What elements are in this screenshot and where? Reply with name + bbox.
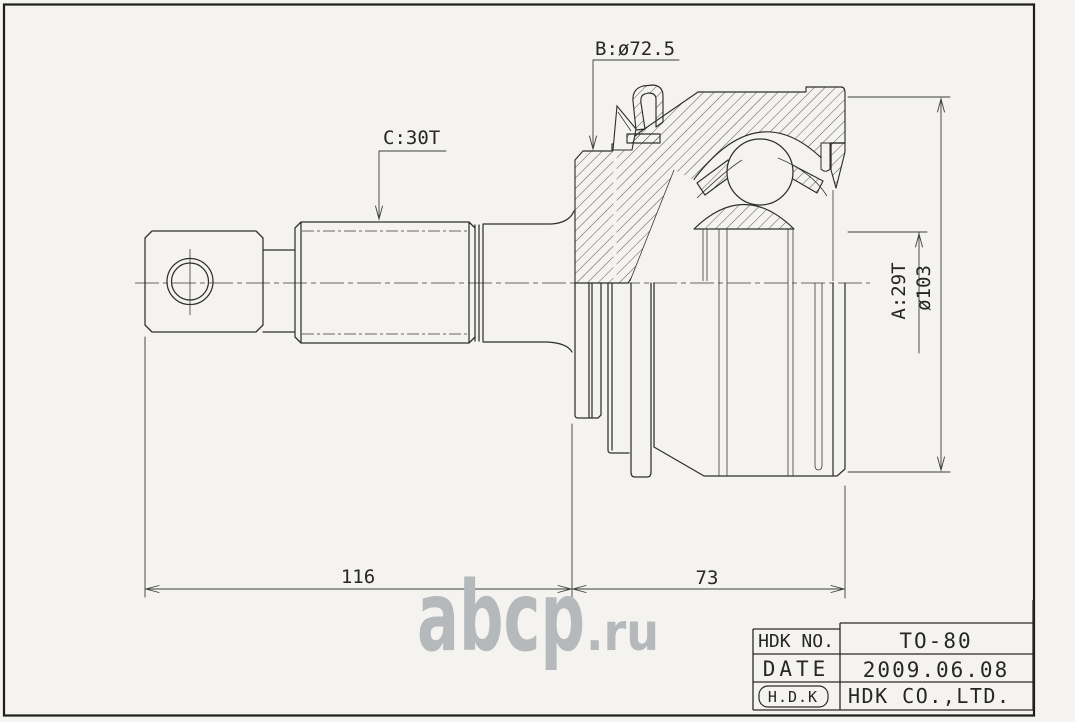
- watermark: abcp .ru: [417, 561, 659, 673]
- watermark-name: abcp: [417, 561, 585, 673]
- title-date-label: DATE: [763, 657, 830, 681]
- extension-lines: [145, 97, 950, 598]
- band-groove: [815, 283, 822, 470]
- housing-silhouette: [575, 283, 845, 477]
- label-boot-diameter: B:ø72.5: [595, 38, 675, 60]
- title-no-value: TO-80: [899, 629, 972, 653]
- clamp-band-roll: [633, 85, 663, 130]
- inner-joint-shaft: [145, 211, 574, 352]
- hub-bore-lines: [703, 190, 833, 476]
- title-date-value: 2009.06.08: [863, 658, 1009, 682]
- cv-joint-technical-drawing: B:ø72.5 C:30T A:29T ø103 116 73 abcp .ru…: [0, 0, 1075, 722]
- bearing-ball: [727, 139, 793, 205]
- label-outer-spline: A:29T: [888, 262, 910, 319]
- inner-race-hub: [694, 205, 794, 230]
- housing-external-lower: [575, 283, 845, 477]
- clamp-band-strip: [627, 134, 660, 143]
- label-shaft-spline: C:30T: [383, 127, 440, 149]
- dim-shaft-length: 116: [341, 566, 375, 588]
- shaft-outline: [145, 211, 574, 352]
- title-block: HDK NO. TO-80 DATE 2009.06.08 H.D.K HDK …: [753, 600, 1033, 710]
- arrowheads: [146, 99, 945, 593]
- watermark-domain: .ru: [586, 603, 659, 663]
- label-outer-diameter: ø103: [913, 265, 935, 311]
- title-company: HDK CO.,LTD.: [848, 684, 1011, 708]
- dim-joint-length: 73: [696, 567, 719, 589]
- spline-pitch-lines: [302, 231, 468, 334]
- housing-right-lip: [831, 143, 845, 188]
- centerlines: [135, 231, 870, 334]
- title-no-label: HDK NO.: [758, 631, 834, 652]
- hdk-logo-text: H.D.K: [768, 688, 818, 706]
- snap-ring-groove: [821, 143, 830, 171]
- boot-clamp-detail: [613, 85, 663, 150]
- drawing-sheet: B:ø72.5 C:30T A:29T ø103 116 73 abcp .ru…: [0, 0, 1075, 722]
